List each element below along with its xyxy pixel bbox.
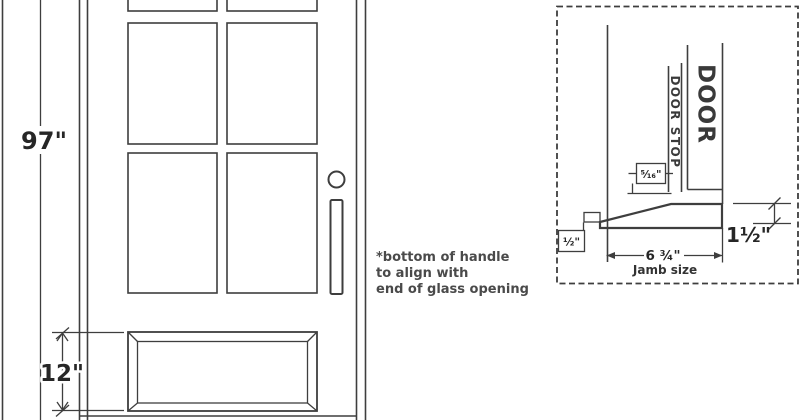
- bottom-panel: [128, 332, 317, 411]
- note-line-2: to align with: [376, 266, 468, 281]
- handle-alignment-note: *bottom of handle to align with end of g…: [376, 250, 529, 297]
- door-elevation: 97": [3, 0, 366, 420]
- drawing-sheet: 97": [0, 0, 812, 420]
- note-line-1: *bottom of handle: [376, 250, 510, 265]
- bottom-rail-dimension-label: 12": [40, 361, 84, 387]
- door-stop-width-label: ⁵⁄₁₆": [640, 169, 661, 181]
- door-stop-width-dimension: ⁵⁄₁₆": [628, 164, 674, 194]
- note-line-3: end of glass opening: [376, 282, 529, 297]
- bottom-panel-inner: [138, 342, 308, 404]
- arrow-right: [714, 252, 723, 259]
- sill-nosing-step: [584, 213, 600, 223]
- threshold-height-label: 1½": [726, 223, 771, 247]
- bottom-rail-dimension: 12": [40, 328, 124, 417]
- door-shop-drawing: 97": [0, 0, 812, 420]
- glass-pane: [227, 0, 317, 11]
- glass-pane: [128, 23, 217, 144]
- glass-grid: [128, 0, 317, 293]
- height-dimension: 97": [21, 0, 67, 420]
- glass-pane: [128, 153, 217, 293]
- jamb-size-label: 6 ¾": [645, 248, 680, 264]
- door-handle-bar: [331, 200, 343, 294]
- height-dimension-label: 97": [21, 127, 67, 155]
- sill-nosing-dimension: ½": [559, 223, 585, 252]
- jamb-size-caption: Jamb size: [632, 263, 697, 277]
- threshold-profile: [600, 204, 722, 228]
- door-outline: [80, 0, 366, 420]
- jamb-size-dimension: 6 ¾" Jamb size: [607, 228, 723, 277]
- door-section: DOOR: [688, 43, 723, 204]
- bottom-panel-outer: [128, 332, 317, 411]
- door-label: DOOR: [693, 64, 719, 144]
- panel-bevel-line: [128, 332, 138, 342]
- threshold-height-dimension: 1½": [726, 198, 791, 248]
- panel-bevel-line: [308, 332, 318, 342]
- panel-bevel-line: [128, 403, 138, 411]
- glass-pane: [227, 23, 317, 144]
- panel-bevel-line: [308, 403, 318, 411]
- door-stop-section: DOOR STOP: [668, 63, 682, 192]
- sill-nosing-label: ½": [563, 236, 580, 249]
- door-stop-label: DOOR STOP: [668, 75, 682, 168]
- door-knob: [329, 172, 345, 188]
- glass-pane: [227, 153, 317, 293]
- glass-pane: [128, 0, 217, 11]
- jamb-detail: DOOR STOP DOOR ⁵⁄₁₆" ½": [557, 7, 798, 284]
